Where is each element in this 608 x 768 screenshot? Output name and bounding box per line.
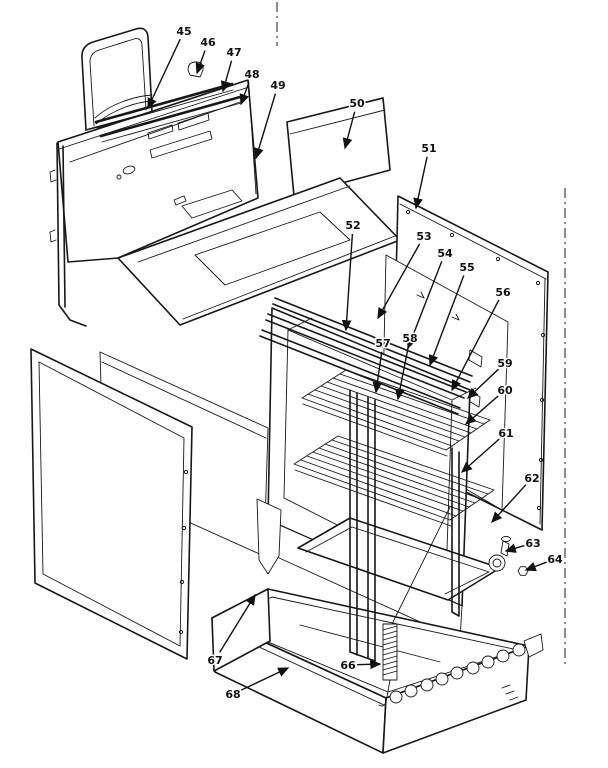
part-label-64: 64 [547,553,563,566]
part-label-61: 61 [498,427,513,440]
part-label-60: 60 [497,384,513,397]
part-label-56: 56 [495,286,511,299]
part-label-48: 48 [244,68,259,81]
part-label-66: 66 [340,659,356,672]
parts-diagram: 4546474849505152535455565758596061626364… [0,0,608,768]
grommet-outer [489,555,505,571]
bolt-head [502,537,511,542]
part-label-54: 54 [437,247,453,260]
part-label-53: 53 [416,230,431,243]
leader-line-51 [416,157,427,208]
bolt-shaft [501,541,509,556]
part-label-67: 67 [207,654,222,667]
part-label-62: 62 [524,472,539,485]
leader-line-64 [526,562,547,570]
fasteners [489,537,528,576]
nut [518,567,528,576]
part-label-68: 68 [225,688,240,701]
leader-line-49 [256,94,275,158]
part-label-52: 52 [345,219,360,232]
part-label-63: 63 [525,537,540,550]
leader-line-66 [357,664,380,665]
backguard-mount-tabs [50,170,56,242]
page: 4546474849505152535455565758596061626364… [0,0,608,768]
part-label-57: 57 [375,337,390,350]
panel-bracket [257,499,281,574]
part-label-47: 47 [226,46,241,59]
part-label-45: 45 [176,25,191,38]
leader-line-45 [148,39,180,108]
part-label-50: 50 [349,97,365,110]
part-label-51: 51 [421,142,436,155]
part-label-46: 46 [200,36,216,49]
part-label-59: 59 [497,357,512,370]
part-label-58: 58 [402,332,417,345]
part-label-55: 55 [459,261,474,274]
part-label-49: 49 [270,79,285,92]
broiler-drawer [212,589,543,753]
